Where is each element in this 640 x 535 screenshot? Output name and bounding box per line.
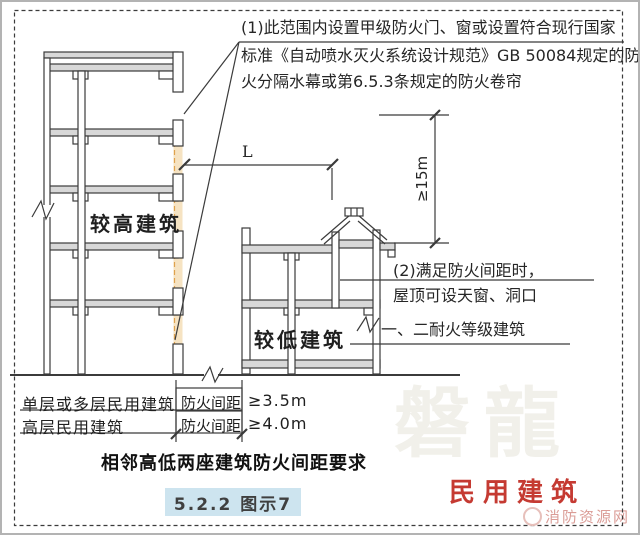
table-row-distance-type: 防火间距 <box>181 415 241 436</box>
lower-building-label: 较低建筑 <box>254 324 346 353</box>
note2-line2: 屋顶可设天窗、洞口 <box>393 286 537 306</box>
note2-line1: (2)满足防火间距时， <box>393 261 544 281</box>
table-caption: 相邻高低两座建筑防火间距要求 <box>101 449 367 475</box>
table-row-value: ≥4.0m <box>248 414 307 433</box>
table-row-distance-type: 防火间距 <box>181 392 241 413</box>
table-row-building-type: 单层或多层民用建筑 <box>22 391 175 415</box>
height-dimension-label: ≥15m <box>413 151 431 207</box>
note1-line3: 火分隔水幕或第6.5.3条规定的防火卷帘 <box>241 72 522 92</box>
distance-dimension-label: L <box>242 142 253 161</box>
roof-ridge-cap <box>345 208 363 216</box>
note1-line1: (1)此范围内设置甲级防火门、窗或设置符合现行国家 <box>241 18 616 38</box>
table-row-value: ≥3.5m <box>248 391 307 410</box>
taller-building-label: 较高建筑 <box>90 208 182 237</box>
site-logo-icon <box>523 507 542 526</box>
fire-resistance-label: 一、二耐火等级建筑 <box>381 320 525 340</box>
note1-line2: 标准《自动喷水灭火系统设计规范》GB 50084规定的防 <box>241 46 640 66</box>
table-row-building-type: 高层民用建筑 <box>22 414 124 438</box>
figure-page: 磐龍 <box>0 0 640 535</box>
distance-dimension <box>179 159 338 200</box>
